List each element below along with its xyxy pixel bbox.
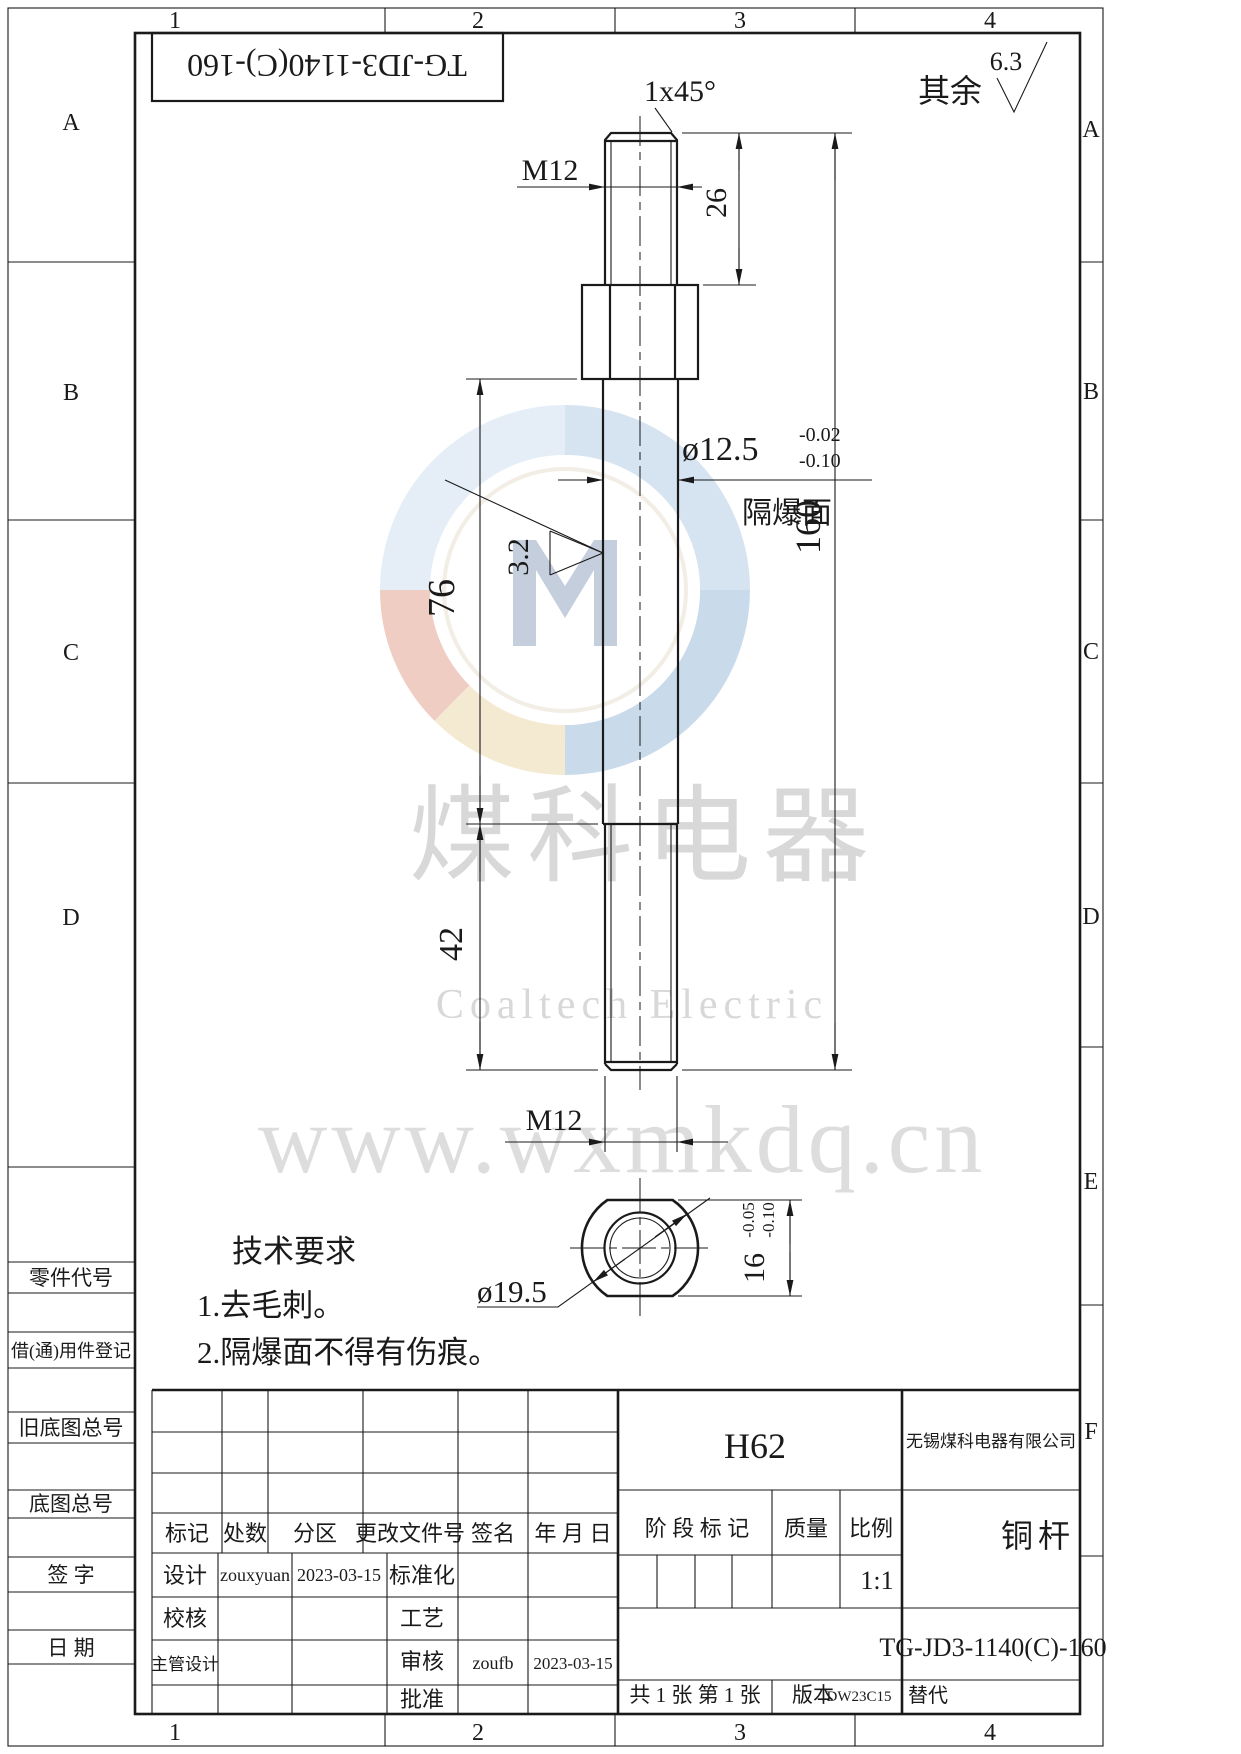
standardization-label: 标准化 (389, 1563, 455, 1588)
scale-value: 1:1 (860, 1566, 893, 1595)
rev-col-count: 处数 (223, 1521, 267, 1546)
rev-col-zone: 分区 (293, 1521, 337, 1546)
check-label: 校核 (163, 1606, 207, 1631)
dim-dia125-tol-lo: -0.10 (799, 450, 841, 472)
scale-label: 比例 (849, 1516, 893, 1541)
zone-top-3: 3 (734, 8, 746, 34)
substitute-label: 替代 (908, 1684, 948, 1707)
technical-requirements: 技术要求 1.去毛刺。 2.隔爆面不得有伤痕。 (197, 1234, 499, 1370)
design-name: zouxyuan (220, 1565, 290, 1585)
process-label: 工艺 (400, 1606, 444, 1631)
design-label: 设计 (163, 1563, 207, 1588)
margin-sign-label: 签 字 (47, 1563, 94, 1587)
chief-design-label: 主管设计 (151, 1655, 219, 1674)
rest-roughness-note: 其余 6.3 (918, 42, 1047, 112)
margin-label-boxes: 零件代号 借(通)用件登记 旧底图总号 底图总号 签 字 日 期 (8, 1262, 135, 1664)
dim-dia125-tol-hi: -0.02 (799, 424, 841, 446)
title-block-text: 标记 处数 分区 更改文件号 签名 年 月 日 设计 zouxyuan 2023… (151, 1426, 1107, 1712)
material-grade: H62 (724, 1426, 786, 1466)
dim-m12-bottom: M12 (526, 1104, 583, 1137)
dim-dia125: ø12.5 (682, 431, 759, 468)
label-flameproof-surface: 隔爆面 (742, 497, 832, 530)
watermark-en: Coaltech Electric (436, 982, 828, 1028)
margin-date-label: 日 期 (47, 1636, 94, 1660)
company-name: 无锡煤科电器有限公司 (906, 1432, 1076, 1451)
zone-top-2: 2 (472, 8, 484, 34)
tech-req-title: 技术要求 (232, 1234, 356, 1269)
mass-label: 质量 (784, 1516, 828, 1541)
tech-req-item-1: 1.去毛刺。 (197, 1288, 344, 1323)
margin-part-code-label: 零件代号 (29, 1266, 113, 1290)
margin-borrow-label: 借(通)用件登记 (11, 1341, 131, 1362)
dim-16-tol-hi: -0.05 (739, 1202, 758, 1237)
rest-roughness-value: 6.3 (990, 47, 1023, 76)
rev-col-mark: 标记 (165, 1521, 209, 1546)
zone-left-b: B (63, 380, 79, 406)
rev-col-date: 年 月 日 (534, 1521, 611, 1546)
approve-label: 批准 (400, 1687, 444, 1712)
end-view: ø19.5 16 -0.05 -0.10 (477, 1178, 802, 1318)
zone-left-d: D (62, 905, 79, 931)
zone-right-d: D (1082, 904, 1099, 930)
dim-chamfer: 1x45° (644, 75, 716, 108)
zone-bottom-3: 3 (734, 1720, 746, 1746)
drawing-sheet: 煤科电器 Coaltech Electric www.wxmkdq.cn 1 2… (0, 0, 1241, 1754)
doc-number-flipped: TG-JD3-1140(C)-160 (187, 48, 467, 84)
zone-bottom-1: 1 (169, 1720, 181, 1746)
zone-left-a: A (62, 110, 80, 136)
zone-right-b: B (1083, 379, 1099, 405)
dim-dia195: ø19.5 (477, 1274, 547, 1309)
design-date: 2023-03-15 (297, 1565, 381, 1585)
part-name: 铜杆 (1001, 1518, 1075, 1554)
audit-label: 审核 (400, 1649, 444, 1674)
watermark-url: www.wxmkdq.cn (258, 1086, 986, 1193)
stage-mark-label: 阶 段 标 记 (645, 1516, 750, 1541)
zone-left-c: C (63, 640, 79, 666)
sheet-count: 共 1 张 第 1 张 (629, 1683, 760, 1707)
zone-right-a: A (1082, 117, 1100, 143)
version-value: DW23C15 (827, 1689, 892, 1705)
margin-base-label: 底图总号 (29, 1492, 113, 1516)
dim-42: 42 (433, 927, 470, 961)
rev-col-signature: 签名 (471, 1521, 515, 1546)
dim-16: 16 (738, 1253, 771, 1283)
dim-26: 26 (700, 188, 733, 218)
drawing-number: TG-JD3-1140(C)-160 (879, 1633, 1106, 1662)
zone-top-1: 1 (169, 8, 181, 34)
rest-label: 其余 (918, 73, 982, 109)
zone-bottom-2: 2 (472, 1720, 484, 1746)
margin-old-base-label: 旧底图总号 (19, 1416, 124, 1440)
zone-bottom-4: 4 (984, 1720, 996, 1746)
zone-right-c: C (1083, 639, 1099, 665)
dim-m12-top: M12 (522, 154, 579, 187)
dim-16-tol-lo: -0.10 (759, 1202, 778, 1237)
audit-name: zoufb (473, 1653, 514, 1673)
tech-req-item-2: 2.隔爆面不得有伤痕。 (197, 1335, 499, 1370)
doc-number-box: TG-JD3-1140(C)-160 (152, 33, 503, 101)
audit-date: 2023-03-15 (533, 1654, 612, 1673)
zone-top-4: 4 (984, 8, 996, 34)
rev-col-docno: 更改文件号 (355, 1521, 465, 1546)
dim-76: 76 (421, 579, 463, 617)
zone-right-f: F (1084, 1419, 1097, 1445)
dim-rough-32: 3.2 (502, 538, 535, 576)
zone-right-e: E (1084, 1169, 1099, 1195)
